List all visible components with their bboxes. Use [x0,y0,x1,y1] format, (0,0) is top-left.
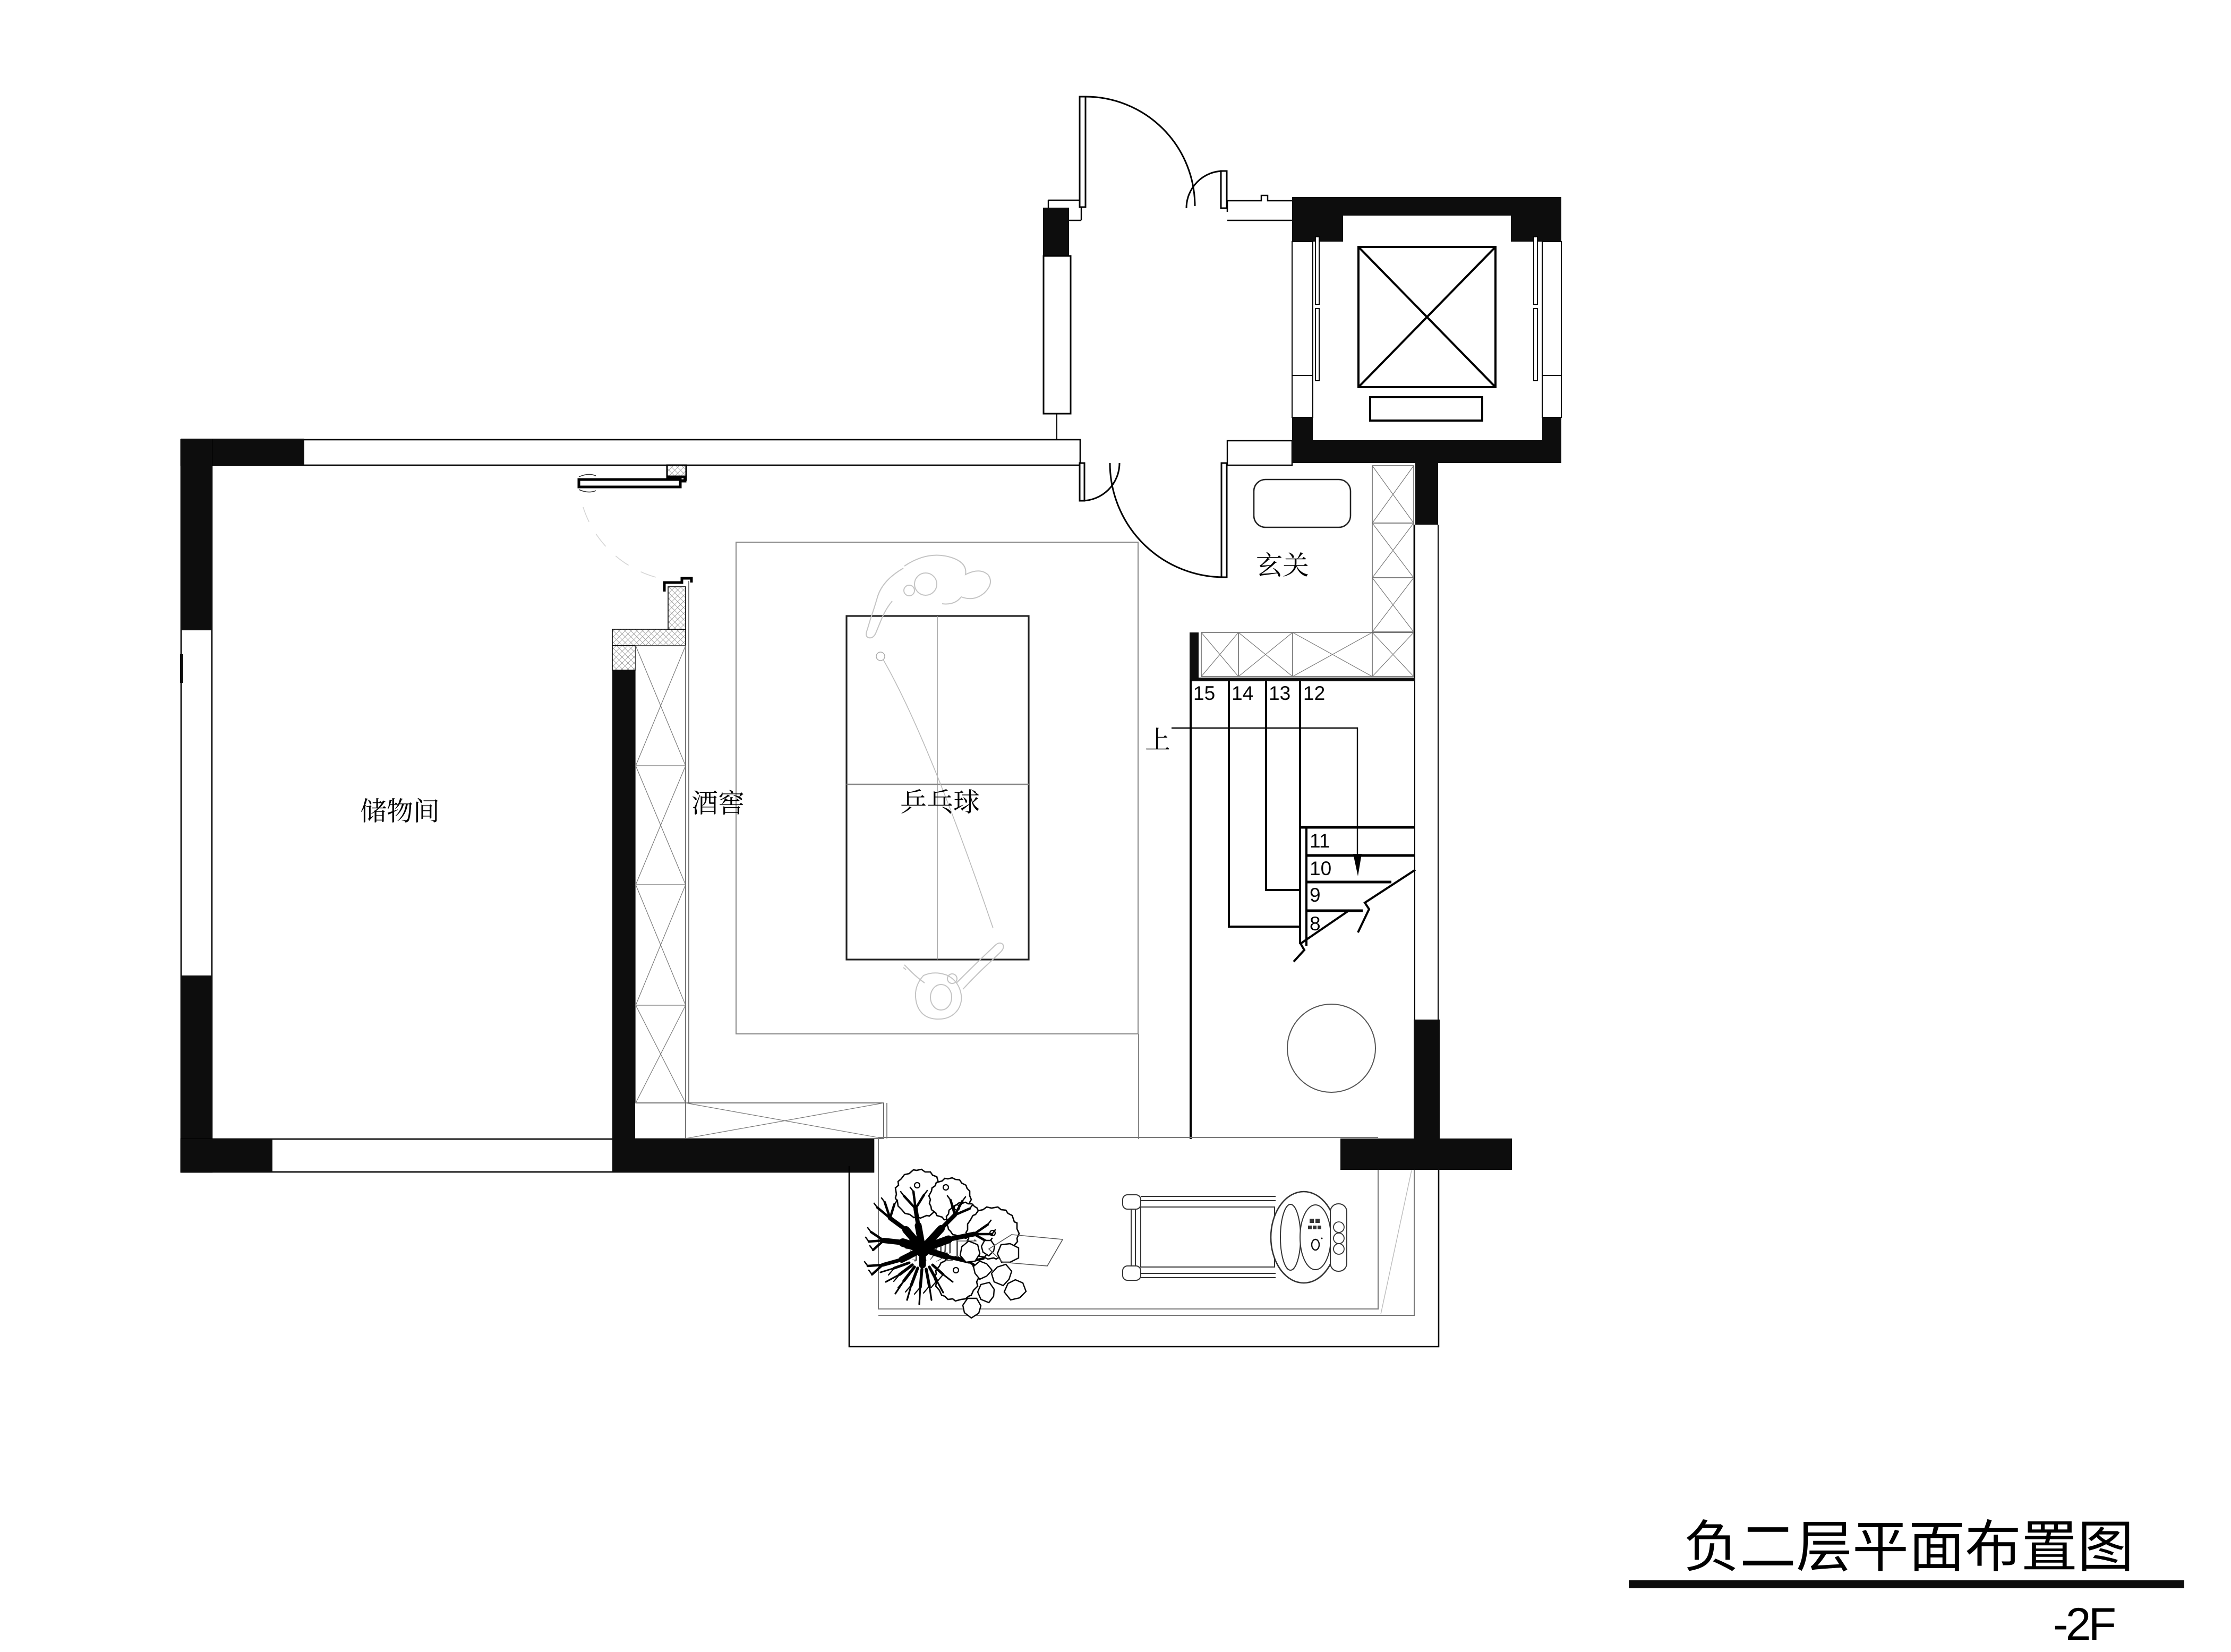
svg-text:12: 12 [1303,682,1325,704]
svg-text:13: 13 [1269,682,1290,704]
svg-text:14: 14 [1232,682,1253,704]
svg-text:15: 15 [1193,682,1215,704]
svg-text:8: 8 [1310,913,1321,935]
svg-text:9: 9 [1310,884,1321,906]
svg-text:-2F: -2F [2053,1599,2116,1649]
svg-text:11: 11 [1310,830,1330,852]
svg-text:10: 10 [1310,858,1331,879]
